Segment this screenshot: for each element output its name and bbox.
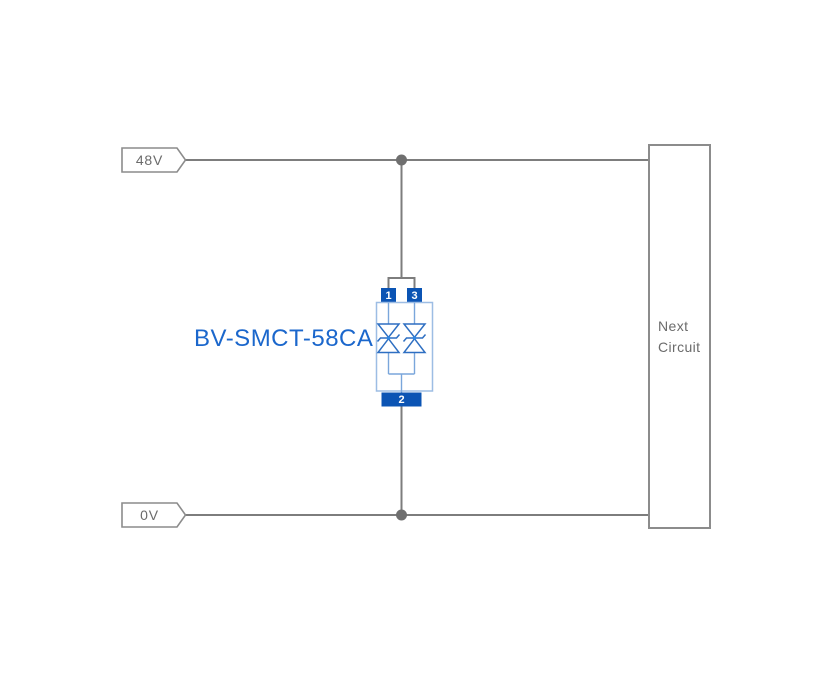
tvs-right-center-dot: [413, 336, 417, 340]
top-rail-label: 48V: [122, 148, 177, 172]
pin-1-label: 1: [381, 288, 396, 303]
next-circuit-line1: Next: [658, 316, 688, 337]
next-circuit-line2: Circuit: [658, 337, 700, 358]
component-label: BV-SMCT-58CA: [194, 325, 369, 355]
bottom-junction-dot: [396, 510, 407, 521]
component-body: [377, 303, 433, 392]
tvs-left-center-dot: [387, 336, 391, 340]
pin-2-label: 2: [381, 392, 422, 407]
pin-3-label: 3: [407, 288, 422, 303]
top-junction-dot: [396, 155, 407, 166]
circuit-diagram: 48V 0V BV-SMCT-58CA Next Circuit 1 3 2: [0, 0, 832, 675]
next-circuit-label: Next Circuit: [650, 145, 709, 528]
bottom-rail-label: 0V: [122, 503, 177, 527]
